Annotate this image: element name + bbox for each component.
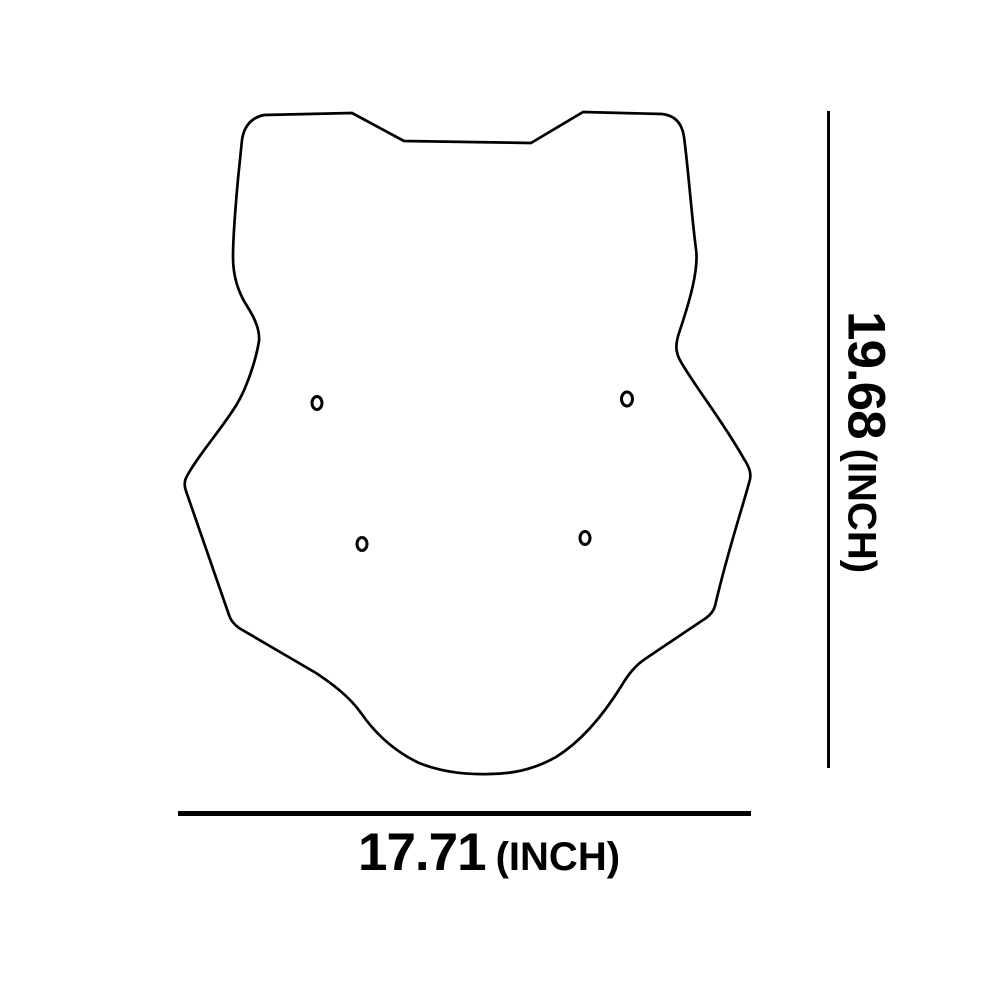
mounting-hole-top-right: [622, 392, 633, 406]
width-value: 17.71: [358, 823, 486, 882]
height-unit: (INCH): [840, 449, 884, 573]
width-unit: (INCH): [496, 835, 620, 879]
mounting-hole-bottom-right: [580, 532, 590, 545]
mounting-hole-top-left: [312, 397, 322, 410]
width-dimension-label: 17.71(INCH): [358, 822, 620, 883]
windscreen-outline: [185, 112, 751, 774]
dimension-drawing-canvas: 19.68(INCH) 17.71(INCH): [0, 0, 1000, 1000]
width-dimension-line: [178, 811, 751, 816]
height-dimension-line: [827, 111, 830, 768]
mounting-hole-bottom-left: [357, 538, 367, 551]
height-value: 19.68: [837, 311, 896, 439]
height-dimension-label: 19.68(INCH): [836, 311, 897, 573]
